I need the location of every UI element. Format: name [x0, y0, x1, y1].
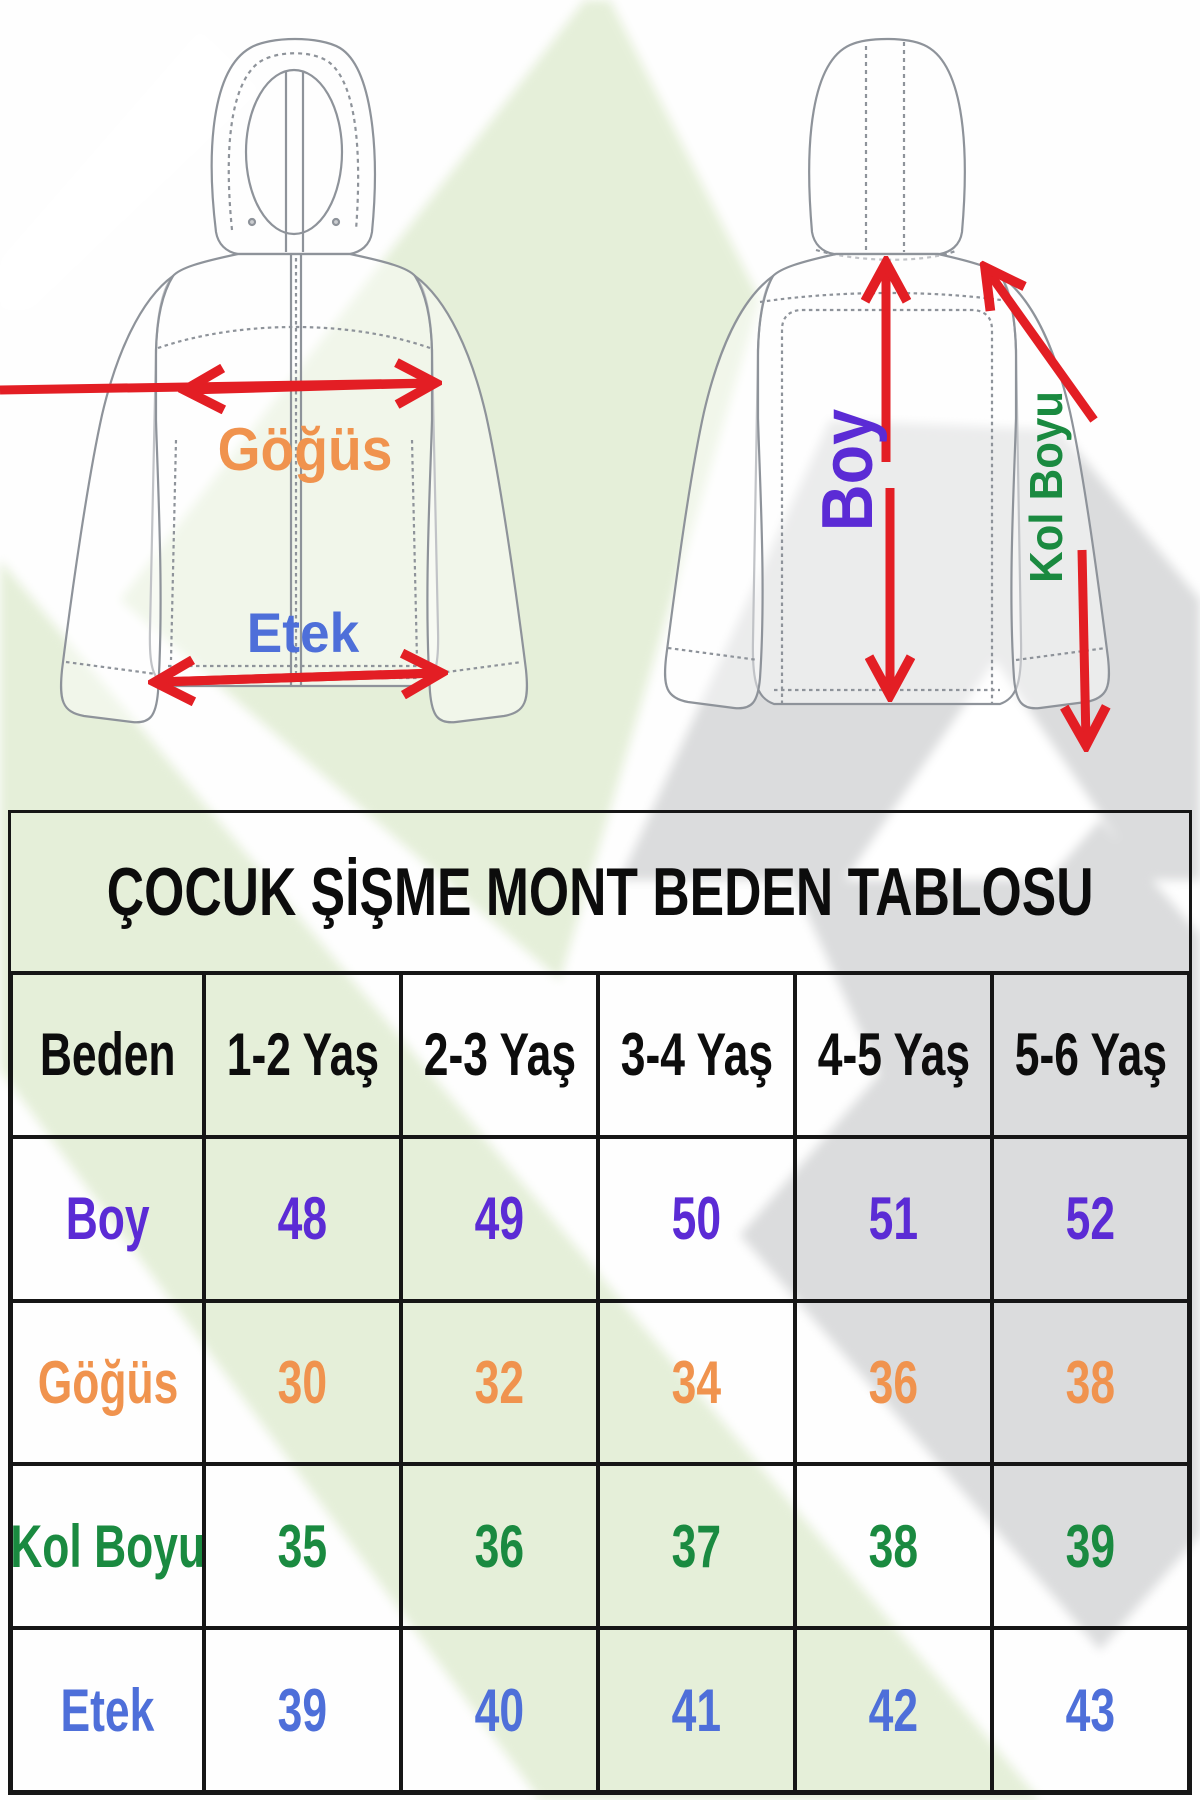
size-table-grid: Beden 1-2 Yaş 2-3 Yaş 3-4 Yaş 4-5 Yaş 5-… — [11, 973, 1189, 1792]
length-measure-label: Boy — [812, 409, 884, 531]
gogus-value-2-3: 32 — [401, 1301, 598, 1465]
kol-boyu-value-4-5: 38 — [795, 1464, 992, 1628]
boy-value-2-3: 49 — [401, 1137, 598, 1301]
etek-value-4-5: 42 — [795, 1628, 992, 1792]
boy-value-3-4: 50 — [598, 1137, 795, 1301]
row-label-boy: Boy — [11, 1137, 204, 1301]
row-label-etek: Etek — [11, 1628, 204, 1792]
column-header-3-4-yas: 3-4 Yaş — [598, 973, 795, 1137]
etek-value-5-6: 43 — [992, 1628, 1189, 1792]
sleeve-down-arrow — [1082, 550, 1086, 742]
gogus-value-1-2: 30 — [204, 1301, 401, 1465]
column-header-1-2-yas: 1-2 Yaş — [204, 973, 401, 1137]
row-label-kol-boyu: Kol Boyu — [11, 1464, 204, 1628]
gogus-value-5-6: 38 — [992, 1301, 1189, 1465]
column-header-2-3-yas: 2-3 Yaş — [401, 973, 598, 1137]
gogus-value-3-4: 34 — [598, 1301, 795, 1465]
etek-value-2-3: 40 — [401, 1628, 598, 1792]
size-table-title-row: ÇOCUK ŞİŞME MONT BEDEN TABLOSU — [11, 813, 1189, 973]
column-header-5-6-yas: 5-6 Yaş — [992, 973, 1189, 1137]
gogus-value-4-5: 36 — [795, 1301, 992, 1465]
size-table: ÇOCUK ŞİŞME MONT BEDEN TABLOSU Beden 1-2… — [8, 810, 1192, 1795]
kol-boyu-value-2-3: 36 — [401, 1464, 598, 1628]
size-chart-graphic: Göğüs Etek Boy Kol Boyu ÇOCUK ŞİŞME MONT… — [0, 0, 1200, 1800]
kol-boyu-value-5-6: 39 — [992, 1464, 1189, 1628]
boy-value-1-2: 48 — [204, 1137, 401, 1301]
hem-measure-label: Etek — [247, 605, 359, 661]
chest-measure-label: Göğüs — [218, 420, 393, 480]
etek-value-3-4: 41 — [598, 1628, 795, 1792]
size-table-title: ÇOCUK ŞİŞME MONT BEDEN TABLOSU — [107, 853, 1094, 931]
etek-value-1-2: 39 — [204, 1628, 401, 1792]
jacket-diagrams: Göğüs Etek Boy Kol Boyu — [0, 0, 1200, 810]
kol-boyu-value-1-2: 35 — [204, 1464, 401, 1628]
column-header-beden: Beden — [11, 973, 204, 1137]
kol-boyu-value-3-4: 37 — [598, 1464, 795, 1628]
column-header-4-5-yas: 4-5 Yaş — [795, 973, 992, 1137]
sleeve-measure-label: Kol Boyu — [1023, 391, 1069, 583]
row-label-gogus: Göğüs — [11, 1301, 204, 1465]
boy-value-4-5: 51 — [795, 1137, 992, 1301]
boy-value-5-6: 52 — [992, 1137, 1189, 1301]
